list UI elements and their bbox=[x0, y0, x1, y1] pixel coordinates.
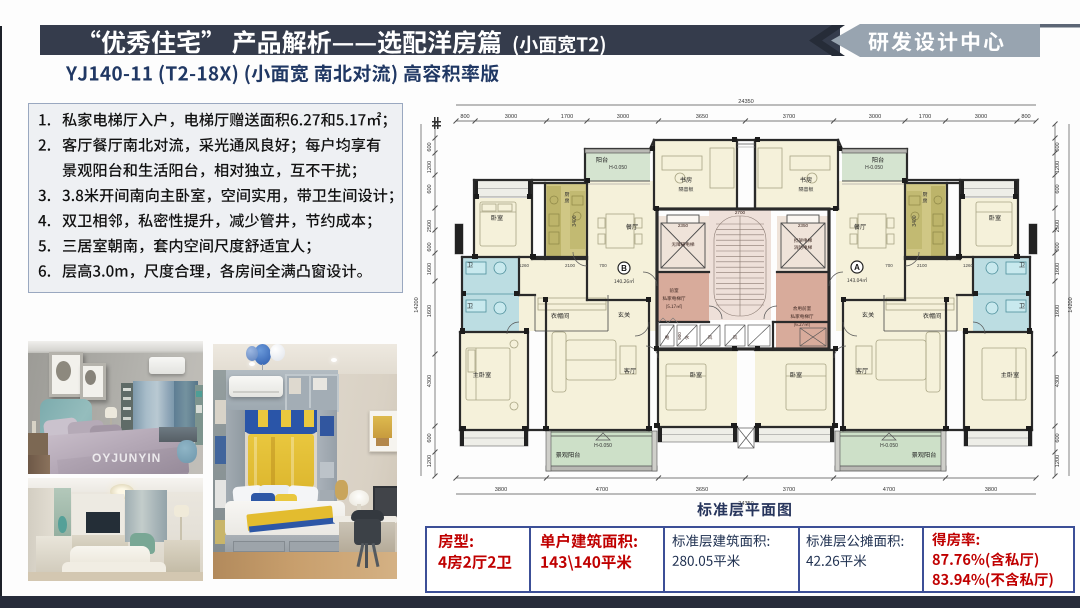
svg-text:1600: 1600 bbox=[427, 263, 433, 275]
svg-text:1200: 1200 bbox=[427, 455, 433, 467]
svg-text:3650: 3650 bbox=[696, 487, 708, 493]
svg-text:600: 600 bbox=[427, 184, 433, 193]
svg-text:700: 700 bbox=[885, 263, 893, 268]
svg-text:2100: 2100 bbox=[917, 263, 928, 268]
svg-text:H-0.050: H-0.050 bbox=[865, 165, 883, 171]
svg-text:2700: 2700 bbox=[735, 210, 746, 215]
svg-text:3700: 3700 bbox=[783, 114, 795, 120]
svg-text:1700: 1700 bbox=[561, 114, 573, 120]
svg-text:600: 600 bbox=[1055, 142, 1061, 151]
svg-text:H-0.050: H-0.050 bbox=[880, 443, 898, 449]
svg-text:3800: 3800 bbox=[985, 487, 997, 493]
svg-text:900: 900 bbox=[677, 332, 682, 340]
svg-text:B: B bbox=[621, 264, 627, 273]
svg-text:1260: 1260 bbox=[519, 263, 530, 268]
svg-text:3000: 3000 bbox=[505, 114, 517, 120]
svg-text:3700: 3700 bbox=[783, 487, 795, 493]
svg-text:4300: 4300 bbox=[1055, 375, 1061, 387]
svg-text:24350: 24350 bbox=[738, 99, 754, 105]
svg-text:800: 800 bbox=[460, 114, 469, 120]
svg-text:2500: 2500 bbox=[1055, 220, 1061, 232]
svg-text:1600: 1600 bbox=[1055, 305, 1061, 317]
svg-text:3000: 3000 bbox=[869, 114, 881, 120]
svg-text:2350: 2350 bbox=[798, 223, 809, 228]
svg-text:3400: 3400 bbox=[572, 215, 578, 226]
svg-text:3800: 3800 bbox=[495, 487, 507, 493]
svg-text:4700: 4700 bbox=[883, 487, 895, 493]
svg-text:1200: 1200 bbox=[1055, 161, 1061, 173]
svg-text:1600: 1600 bbox=[1055, 263, 1061, 275]
svg-text:H-0.050: H-0.050 bbox=[594, 443, 612, 449]
svg-text:600: 600 bbox=[427, 242, 433, 251]
svg-text:H-0.050: H-0.050 bbox=[609, 165, 627, 171]
svg-text:3400: 3400 bbox=[912, 215, 918, 226]
svg-text:600: 600 bbox=[1055, 242, 1061, 251]
svg-text:2500: 2500 bbox=[427, 220, 433, 232]
svg-text:1200: 1200 bbox=[1055, 455, 1061, 467]
svg-text:2100: 2100 bbox=[565, 263, 576, 268]
svg-text:600: 600 bbox=[427, 433, 433, 442]
svg-text:3000: 3000 bbox=[617, 114, 629, 120]
svg-text:800: 800 bbox=[1021, 114, 1030, 120]
svg-text:1700: 1700 bbox=[919, 114, 931, 120]
svg-text:1600: 1600 bbox=[427, 305, 433, 317]
svg-text:600: 600 bbox=[427, 142, 433, 151]
svg-text:2350: 2350 bbox=[678, 223, 689, 228]
svg-text:4300: 4300 bbox=[427, 375, 433, 387]
svg-text:1260: 1260 bbox=[963, 263, 974, 268]
svg-text:1200: 1200 bbox=[427, 161, 433, 173]
svg-text:3000: 3000 bbox=[975, 114, 987, 120]
svg-text:600: 600 bbox=[1055, 433, 1061, 442]
svg-text:700: 700 bbox=[599, 263, 607, 268]
svg-text:A: A bbox=[854, 263, 860, 272]
svg-text:4700: 4700 bbox=[596, 487, 608, 493]
svg-text:600: 600 bbox=[1055, 184, 1061, 193]
svg-text:14200: 14200 bbox=[414, 297, 420, 313]
svg-text:14200: 14200 bbox=[1068, 297, 1074, 313]
svg-text:3650: 3650 bbox=[696, 114, 708, 120]
